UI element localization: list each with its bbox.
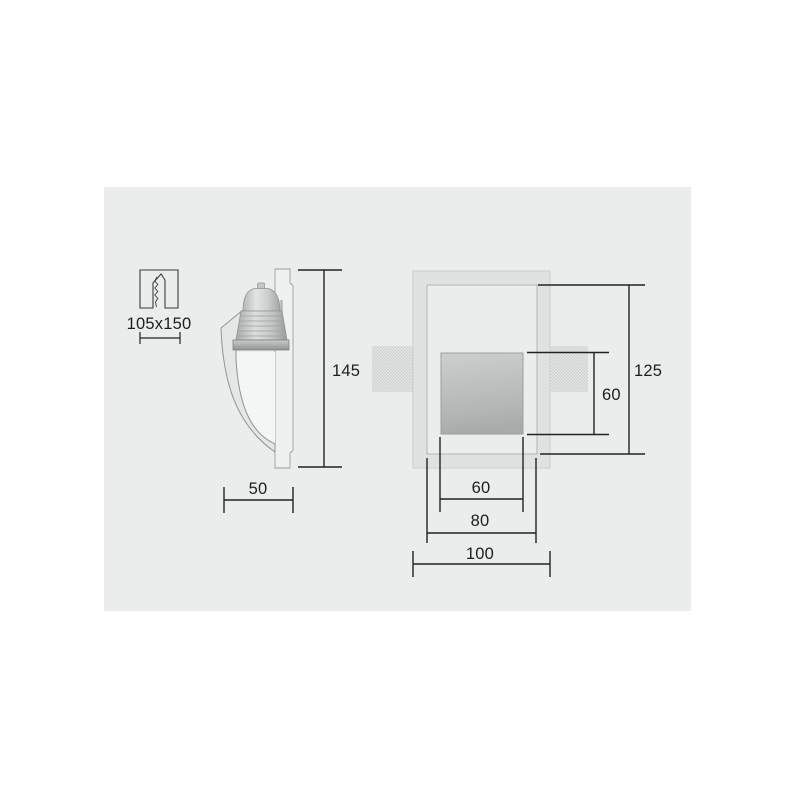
mesh-wing-left [372, 346, 413, 392]
lamp-holder-ring [233, 340, 289, 350]
side-view-section [221, 269, 342, 513]
wall-cutout-icon [140, 270, 180, 344]
cutout-break-line [155, 277, 158, 307]
dimension-cutout [140, 332, 180, 344]
cutout-size-label: 105x150 [127, 316, 192, 333]
technical-drawing [0, 0, 800, 800]
lamp-dome [243, 289, 280, 312]
front-aperture-width-label: 60 [472, 480, 491, 497]
cutout-outline [140, 270, 178, 308]
dimension-opening-width [427, 458, 536, 543]
diagram-page: 105x150 145 50 125 60 60 80 100 [0, 0, 800, 800]
front-opening-height-label: 125 [634, 363, 662, 380]
front-frame-width-label: 100 [466, 546, 494, 563]
front-opening-width-label: 80 [471, 513, 490, 530]
front-lamp-aperture [441, 353, 523, 434]
front-aperture-height-label: 60 [602, 387, 621, 404]
side-height-label: 145 [332, 363, 360, 380]
front-view [372, 271, 645, 577]
side-depth-label: 50 [249, 481, 268, 498]
